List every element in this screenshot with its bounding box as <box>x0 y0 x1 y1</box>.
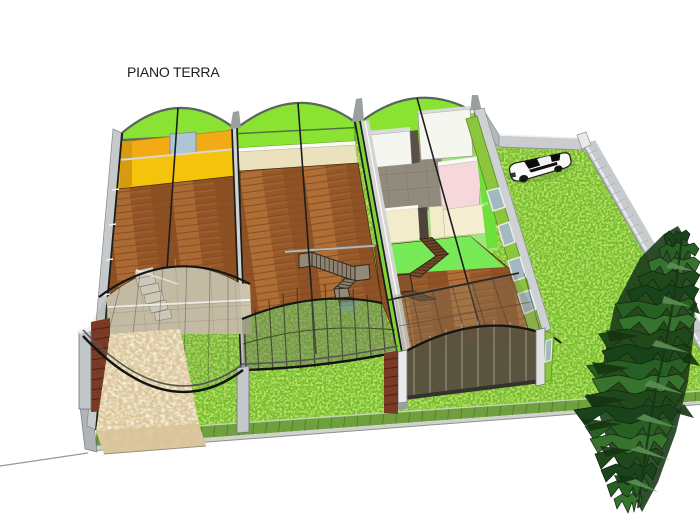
svg-text:PIANO TERRA: PIANO TERRA <box>127 64 220 80</box>
